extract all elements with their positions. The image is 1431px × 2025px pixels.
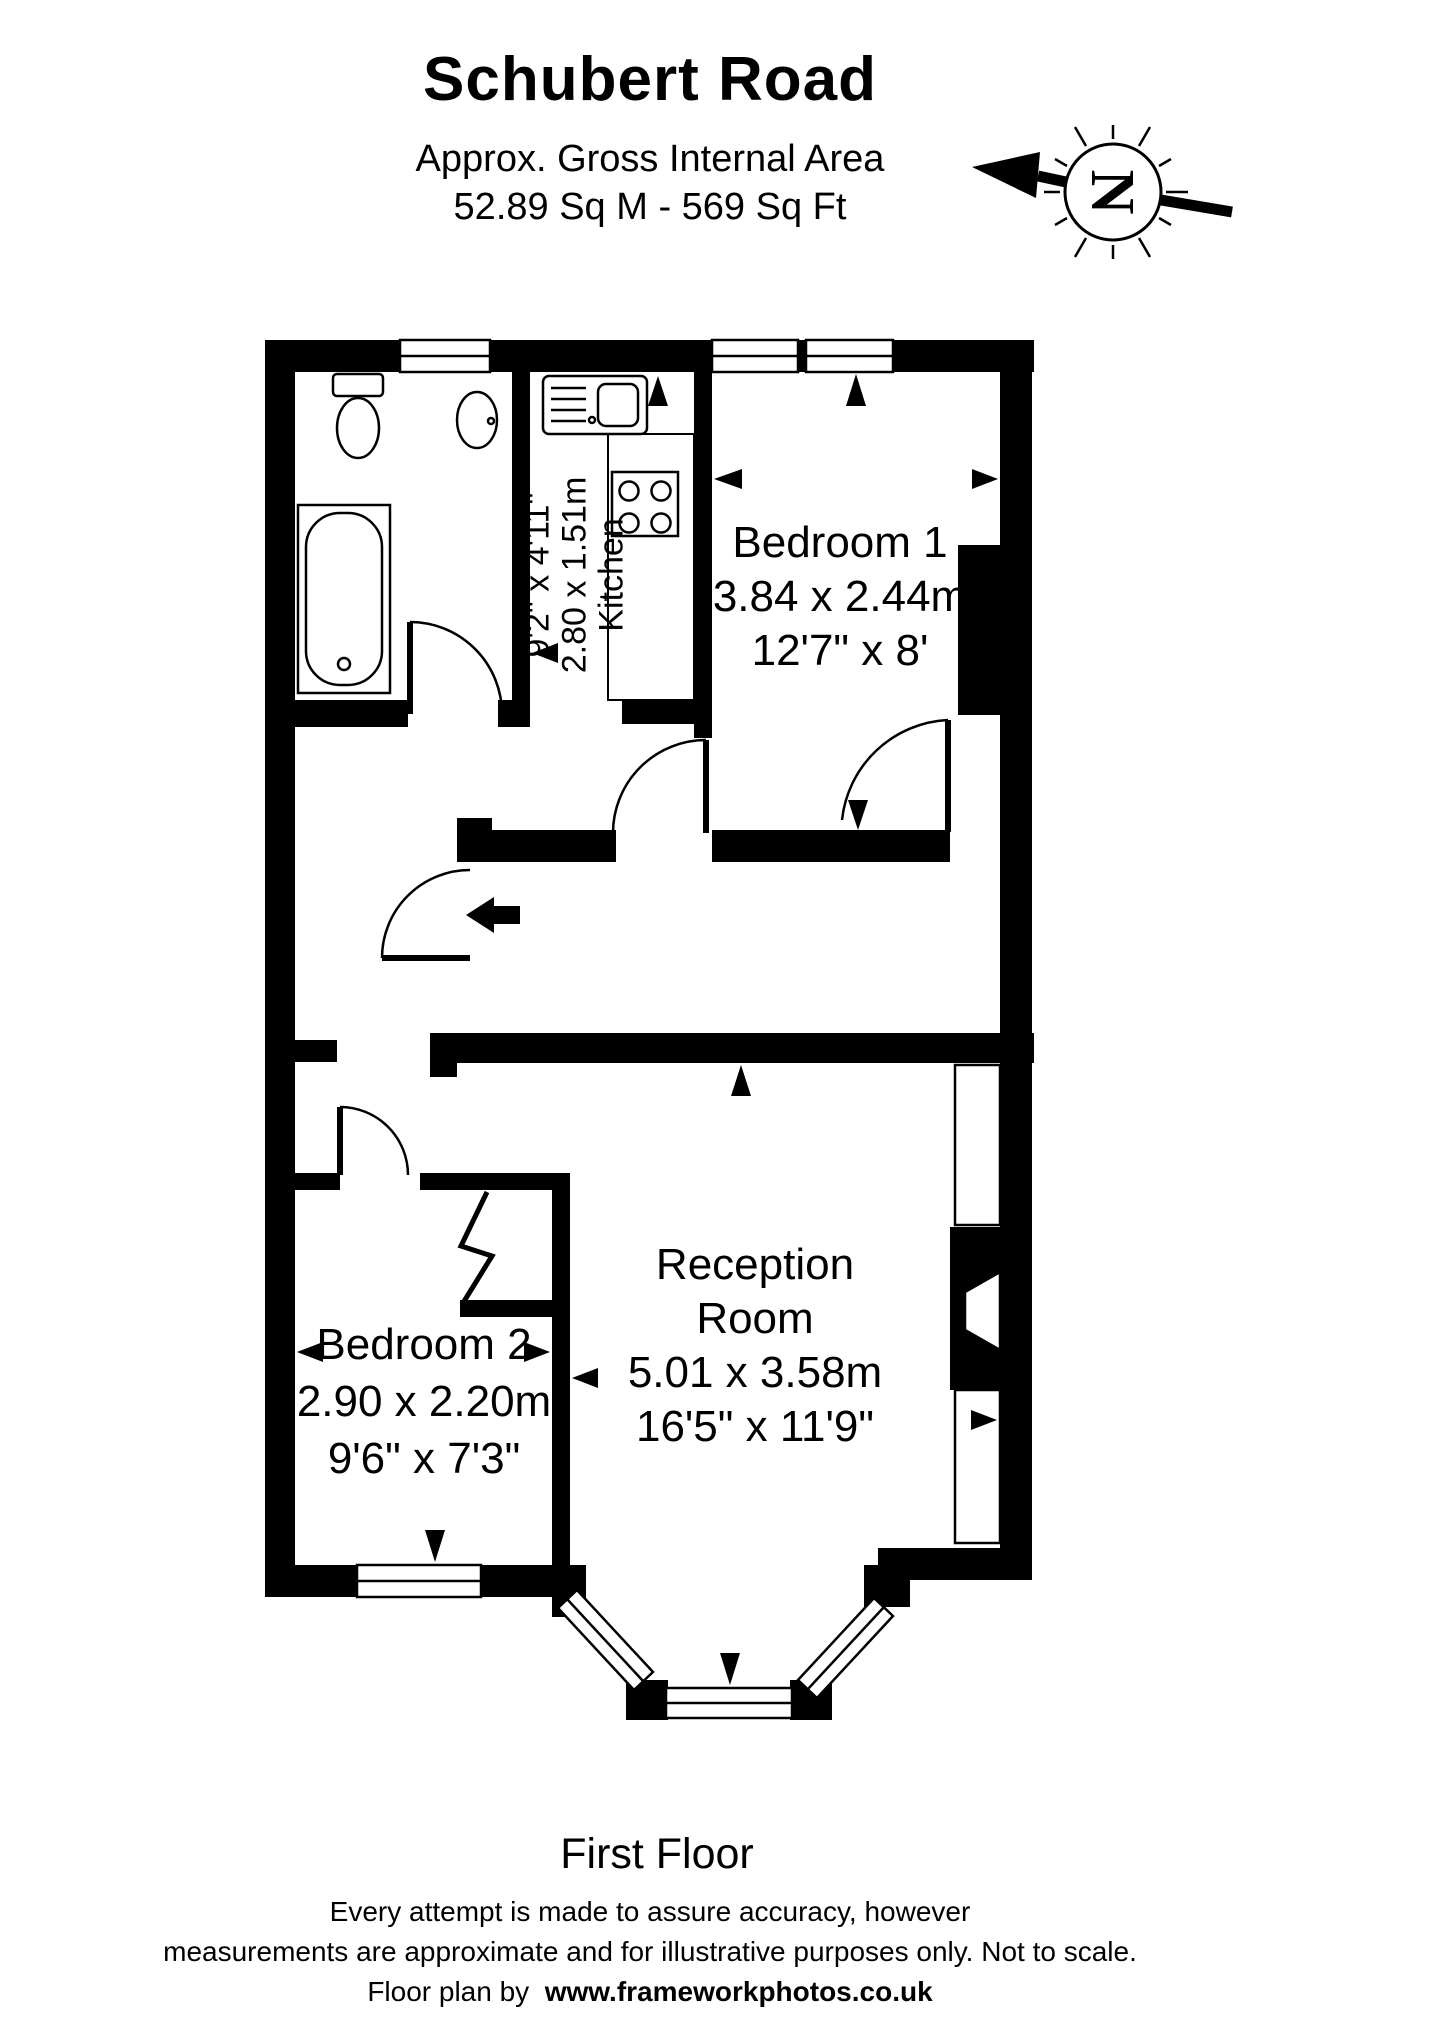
reception-arrow-down: [720, 1653, 740, 1685]
floor-label: First Floor: [560, 1830, 754, 1879]
room-name-line1: Reception: [628, 1238, 882, 1292]
bedroom1-arrow-right: [972, 469, 998, 489]
fixtures: [298, 374, 694, 700]
bedroom2-door: [340, 1107, 408, 1175]
floorplan-drawing: N: [0, 0, 1431, 2025]
bedroom1-arrow-left: [714, 469, 742, 489]
room-dims-metric: 2.90 x 2.20m: [297, 1373, 551, 1430]
bedroom1-window-right: [806, 340, 893, 372]
basin-icon: [457, 392, 497, 448]
bedroom1-arrow-up: [846, 374, 866, 406]
bay-window-centre: [666, 1688, 792, 1718]
wall-break-zigzag: [461, 1192, 492, 1303]
room-name-line2: Room: [628, 1292, 882, 1346]
bathroom-window: [400, 340, 490, 372]
room-dims-imperial: 9'6" x 7'3": [297, 1430, 551, 1487]
inner-hall-door: [613, 740, 706, 833]
bedroom1-label: Bedroom 1 3.84 x 2.44m 12'7" x 8': [713, 516, 967, 678]
bath-icon: [298, 505, 390, 693]
subtitle-area: Approx. Gross Internal Area: [0, 138, 1300, 181]
kitchen-arrow-up: [648, 376, 668, 406]
credit-url: www.frameworkphotos.co.uk: [545, 1976, 933, 2007]
room-dims-imperial: 16'5" x 11'9": [628, 1400, 882, 1454]
bedroom2-window: [357, 1565, 481, 1597]
bedroom1-arrow-down: [848, 800, 868, 830]
room-name: Bedroom 1: [713, 516, 967, 570]
room-dims-metric: 3.84 x 2.44m: [713, 570, 967, 624]
kitchen-label: 9'2" x 4'11" 2.80 x 1.51m Kitchen: [520, 477, 631, 674]
kitchen-sink-icon: [543, 376, 647, 434]
floorplan-page: N: [0, 0, 1431, 2025]
entrance-door: [382, 870, 470, 958]
reception-window-recess-upper: [955, 1065, 1000, 1225]
room-dims-metric: 5.01 x 3.58m: [628, 1346, 882, 1400]
page-title: Schubert Road: [0, 44, 1300, 115]
toilet-icon: [333, 374, 383, 458]
entry-arrow-icon: [466, 897, 520, 933]
subtitle-size: 52.89 Sq M - 569 Sq Ft: [0, 186, 1300, 229]
bedroom2-arrow-down: [425, 1530, 445, 1562]
reception-arrow-up: [731, 1065, 751, 1096]
bay-window-right: [798, 1598, 893, 1698]
room-dims-imperial: 9'2" x 4'11": [520, 477, 557, 674]
disclaimer: Every attempt is made to assure accuracy…: [0, 1892, 1300, 2012]
disclaimer-line3: Floor plan by www.frameworkphotos.co.uk: [0, 1972, 1300, 2012]
room-name: Kitchen: [594, 477, 631, 674]
room-dims-imperial: 12'7" x 8': [713, 624, 967, 678]
reception-label: Reception Room 5.01 x 3.58m 16'5" x 11'9…: [628, 1238, 882, 1454]
bathroom-door: [410, 622, 502, 714]
room-dims-metric: 2.80 x 1.51m: [557, 477, 594, 674]
reception-arrow-left: [572, 1368, 598, 1388]
bedroom2-label: Bedroom 2 2.90 x 2.20m 9'6" x 7'3": [297, 1316, 551, 1487]
room-name: Bedroom 2: [297, 1316, 551, 1373]
disclaimer-line2: measurements are approximate and for ill…: [0, 1932, 1300, 1972]
bedroom1-window-left: [712, 340, 798, 372]
credit-prefix: Floor plan by: [367, 1976, 529, 2007]
disclaimer-line1: Every attempt is made to assure accuracy…: [0, 1892, 1300, 1932]
bay-window-left: [558, 1590, 653, 1690]
